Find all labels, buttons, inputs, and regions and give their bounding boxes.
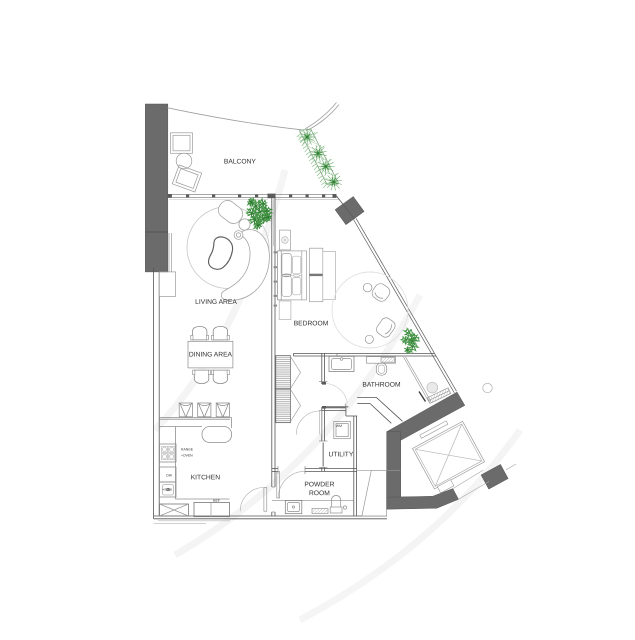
svg-text:ROOM: ROOM [309,490,330,497]
svg-text:RANGE: RANGE [181,448,194,452]
svg-text:DW: DW [166,473,172,477]
svg-text:DINING AREA: DINING AREA [189,352,233,359]
svg-text:BEDROOM: BEDROOM [294,320,329,327]
svg-text:POWDER: POWDER [304,481,334,488]
svg-text:UTILITY: UTILITY [328,451,353,458]
svg-text:BALCONY: BALCONY [224,159,257,166]
svg-text:KITCHEN: KITCHEN [191,474,221,481]
svg-text:WM: WM [336,424,342,428]
svg-text:REF: REF [213,499,220,503]
svg-text:+SINK: +SINK [162,488,173,492]
svg-text:LIVING AREA: LIVING AREA [195,299,237,306]
svg-text:+OVEN: +OVEN [181,454,193,458]
svg-text:BATHROOM: BATHROOM [362,382,401,389]
